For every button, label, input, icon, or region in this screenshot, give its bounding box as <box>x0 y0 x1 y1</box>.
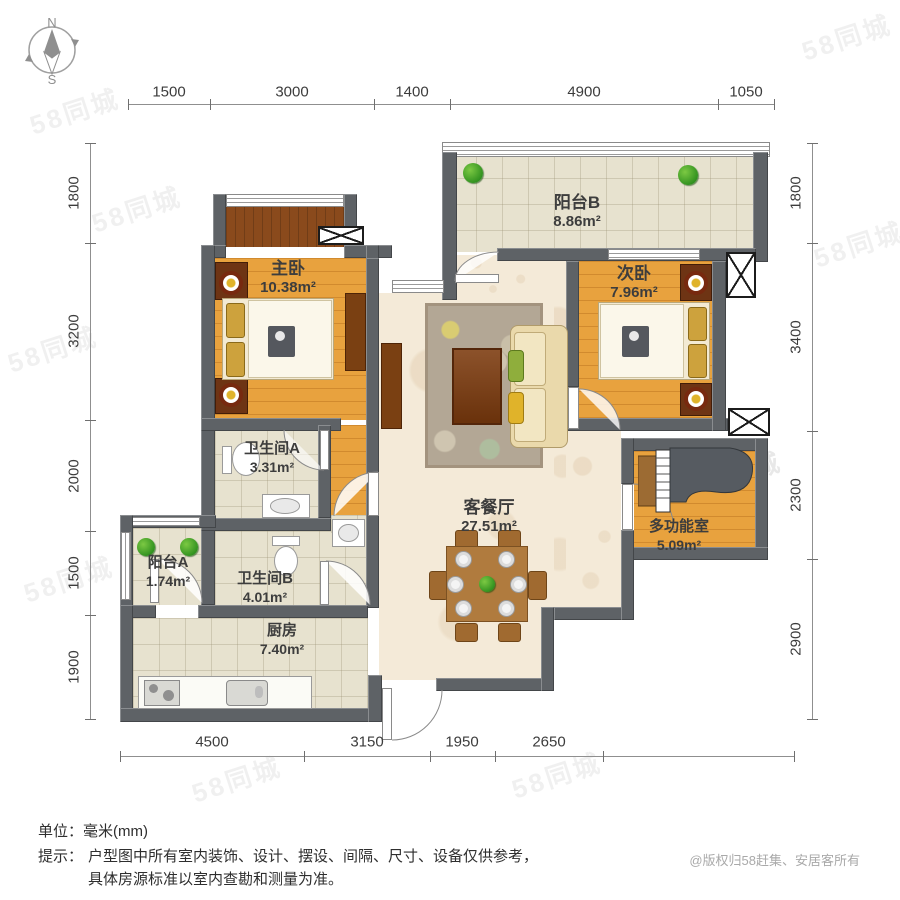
compass-north-label: N <box>47 15 56 30</box>
wall <box>753 152 768 262</box>
tick <box>85 531 96 532</box>
stove <box>144 680 180 706</box>
coffee-table <box>452 348 502 425</box>
room-label-balcony-b: 阳台B8.86m² <box>553 192 601 232</box>
dim-label: 1950 <box>445 734 478 751</box>
lamp-icon <box>684 387 708 411</box>
compass-icon: N S <box>14 10 104 100</box>
wall <box>621 438 768 451</box>
copyright-note: @版权归58赶集、安居客所有 <box>689 850 860 869</box>
sink-wash-niche <box>332 519 365 547</box>
dim-label: 3000 <box>275 84 308 101</box>
room-label-bedroom-master: 主卧10.38m² <box>260 258 316 298</box>
hallway-floor <box>331 425 366 518</box>
ac-platform-hatch <box>726 252 756 298</box>
ac-platform-hatch <box>318 226 364 245</box>
wall <box>120 605 133 722</box>
pillow <box>688 307 707 341</box>
door-leaf-kitchen <box>320 561 329 605</box>
watermark: 58同城 <box>87 177 187 241</box>
unit-note: 单位：毫米(mm) <box>38 820 148 841</box>
tick <box>495 751 496 762</box>
tick <box>807 719 818 720</box>
tick <box>774 99 775 110</box>
plate <box>510 576 527 593</box>
watermark: 58同城 <box>797 5 897 69</box>
faucet <box>255 686 263 698</box>
tick <box>85 143 96 144</box>
dim-label: 2300 <box>788 478 805 511</box>
window <box>121 532 131 600</box>
burner <box>163 690 174 701</box>
wall <box>366 258 379 608</box>
watermark: 58同城 <box>25 79 125 143</box>
plate <box>447 576 464 593</box>
watermark: 58同城 <box>809 212 900 276</box>
pillow <box>688 344 707 378</box>
plate <box>455 551 472 568</box>
dim-label: 1800 <box>788 176 805 209</box>
lamp-icon <box>219 383 243 407</box>
tip-label: 提示： <box>38 845 83 866</box>
dim-label: 2650 <box>532 734 565 751</box>
wardrobe-master <box>345 293 366 371</box>
wall <box>198 605 368 618</box>
watermark: 58同城 <box>507 743 607 807</box>
toilet-a <box>222 446 232 474</box>
tick <box>603 751 604 762</box>
tick <box>794 751 795 762</box>
door-arc-entry <box>392 690 442 740</box>
lamp-icon <box>219 271 243 295</box>
door-leaf-bedroom-second <box>568 387 579 429</box>
compass-south-label: S <box>48 72 57 87</box>
pillow <box>226 342 245 377</box>
room-label-bathroom-a: 卫生间A3.31m² <box>244 440 300 476</box>
plate <box>498 600 515 617</box>
window <box>226 194 344 207</box>
dimension-line-left <box>90 143 91 720</box>
wall <box>566 418 728 431</box>
wall <box>621 530 634 620</box>
sofa-pillow-yellow <box>508 392 524 424</box>
dining-chair <box>455 623 478 642</box>
dim-label: 1500 <box>152 84 185 101</box>
door-leaf-multi-room <box>622 484 633 530</box>
tick <box>120 751 121 762</box>
room-living-corridor <box>566 431 621 607</box>
dim-label: 4900 <box>567 84 600 101</box>
tick <box>450 99 451 110</box>
wall <box>755 438 768 560</box>
room-label-bathroom-b: 卫生间B4.01m² <box>237 570 293 606</box>
room-label-kitchen: 厨房7.40m² <box>260 622 304 658</box>
tick <box>85 243 96 244</box>
door-leaf-balcony-b <box>455 274 499 283</box>
wall <box>712 261 726 431</box>
dimension-line-bottom <box>120 756 795 757</box>
room-label-bedroom-second: 次卧7.96m² <box>610 263 658 303</box>
tick <box>85 420 96 421</box>
dim-label: 2000 <box>66 459 83 492</box>
dim-label: 4500 <box>195 734 228 751</box>
dining-chair <box>528 571 547 600</box>
room-label-balcony-a: 阳台A1.74m² <box>146 554 190 590</box>
plant-icon <box>463 163 483 183</box>
room-label-living-dining: 客餐厅27.51m² <box>461 497 517 537</box>
door-leaf-hallway <box>368 472 379 516</box>
tip-line2: 具体房源标准以室内查勘和测量为准。 <box>88 868 343 889</box>
door-leaf-bathroom-a <box>320 430 329 470</box>
ac-platform-hatch <box>728 408 770 436</box>
dim-label: 1900 <box>66 650 83 683</box>
window <box>130 517 200 526</box>
door-leaf-entry <box>382 688 392 740</box>
plant-icon <box>678 165 698 185</box>
watermark: 58同城 <box>3 317 103 381</box>
lamp-icon <box>684 271 708 295</box>
dim-label: 2900 <box>788 622 805 655</box>
tick <box>807 559 818 560</box>
tick <box>807 243 818 244</box>
wall <box>436 678 554 691</box>
toilet-b <box>272 536 300 546</box>
tick <box>807 143 818 144</box>
dim-label: 1050 <box>729 84 762 101</box>
tray-dish <box>629 331 639 341</box>
window <box>442 142 770 157</box>
dim-label: 1800 <box>66 176 83 209</box>
dim-label: 3400 <box>788 320 805 353</box>
tip-line1: 户型图中所有室内装饰、设计、摆设、间隔、尺寸、设备仅供参考， <box>88 845 538 866</box>
dim-label: 3200 <box>66 314 83 347</box>
tick <box>85 719 96 720</box>
floorplan-page: 58同城 58同城 58同城 58同城 58同城 58同城 58同城 58同城 … <box>0 0 900 900</box>
tv-cabinet <box>381 343 402 429</box>
plate <box>498 551 515 568</box>
dim-label: 1500 <box>66 556 83 589</box>
tick <box>128 99 129 110</box>
room-label-multi-room: 多功能室5.09m² <box>649 518 709 554</box>
wall <box>621 438 634 484</box>
sofa-pillow-green <box>508 350 524 382</box>
tick <box>85 615 96 616</box>
window <box>392 280 444 293</box>
sink-bathroom-a <box>262 494 310 518</box>
tick <box>374 99 375 110</box>
tick <box>210 99 211 110</box>
pillow <box>226 303 245 338</box>
wall <box>201 518 331 531</box>
window <box>608 249 700 260</box>
dimension-line-top <box>128 104 775 105</box>
wall <box>120 708 382 722</box>
tick <box>304 751 305 762</box>
burner <box>149 684 158 693</box>
dining-chair <box>498 623 521 642</box>
dim-label: 3150 <box>350 734 383 751</box>
tick <box>807 431 818 432</box>
tick <box>430 751 431 762</box>
tray-dish <box>275 331 285 341</box>
wall <box>368 675 382 722</box>
room-balcony-b <box>450 152 755 252</box>
tick <box>718 99 719 110</box>
table-plant-icon <box>479 576 495 592</box>
dim-label: 1400 <box>395 84 428 101</box>
wall <box>541 607 554 691</box>
plate <box>455 600 472 617</box>
